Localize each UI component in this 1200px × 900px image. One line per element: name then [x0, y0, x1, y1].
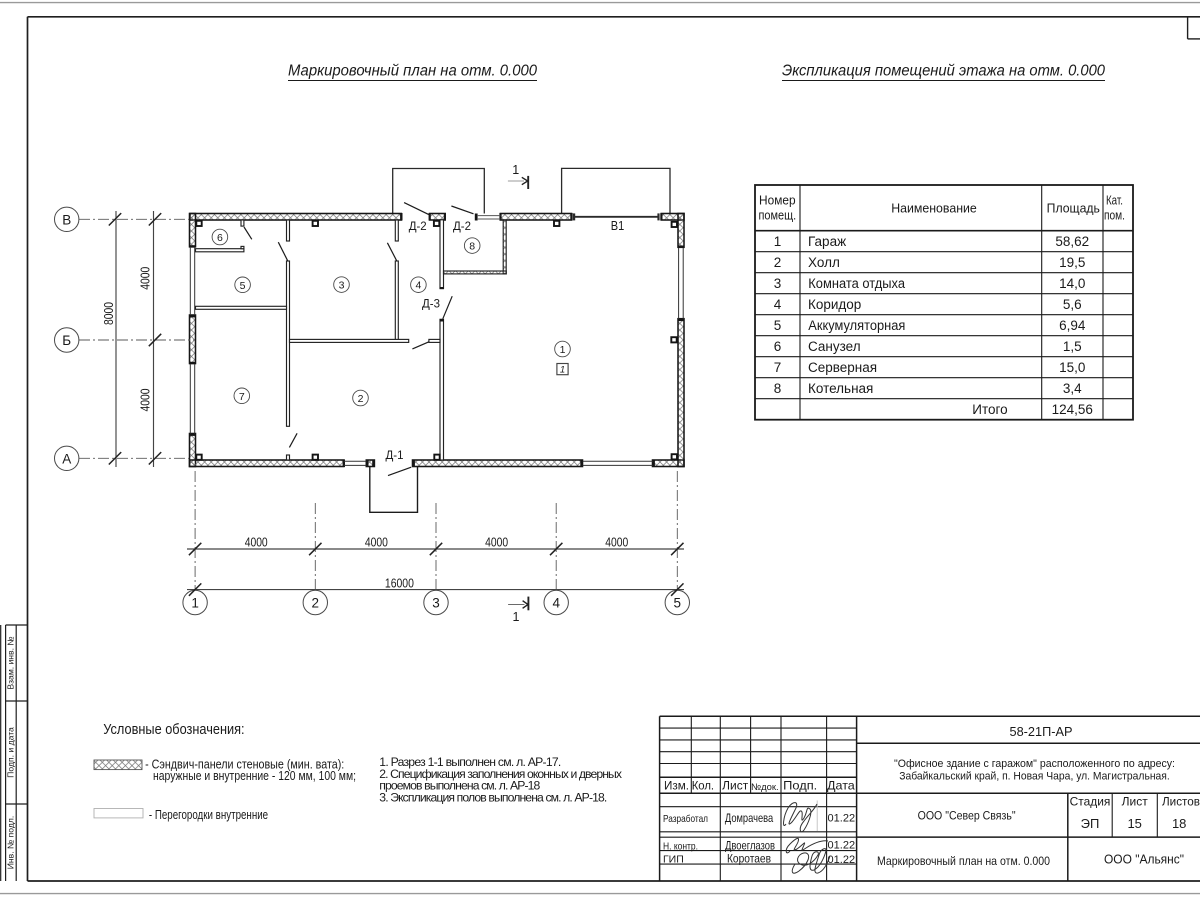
- svg-text:Стадия: Стадия: [1070, 795, 1111, 809]
- svg-text:Маркировочный план на отм. 0.0: Маркировочный план на отм. 0.000: [288, 63, 537, 80]
- svg-text:01.22: 01.22: [828, 813, 856, 825]
- svg-text:Коридор: Коридор: [808, 297, 861, 312]
- svg-text:Забайкальский край, п. Новая Ч: Забайкальский край, п. Новая Чара, ул. М…: [899, 770, 1170, 782]
- svg-text:3. Экспликация полов выполнена: 3. Экспликация полов выполнена см. л. АР…: [379, 790, 607, 804]
- svg-text:1: 1: [513, 610, 520, 624]
- svg-text:1: 1: [560, 365, 565, 376]
- svg-text:3,4: 3,4: [1063, 381, 1082, 396]
- svg-text:Д-1: Д-1: [386, 448, 404, 462]
- svg-text:2: 2: [774, 255, 782, 270]
- svg-text:Листов: Листов: [1162, 795, 1200, 809]
- svg-text:4000: 4000: [139, 388, 153, 411]
- svg-text:Условные обозначения:: Условные обозначения:: [103, 722, 244, 738]
- svg-text:4: 4: [552, 596, 560, 611]
- svg-text:3: 3: [339, 280, 345, 292]
- svg-text:4000: 4000: [365, 535, 388, 549]
- svg-text:8000: 8000: [102, 302, 116, 325]
- svg-text:Разработал: Разработал: [663, 813, 708, 825]
- svg-text:Коротаев: Коротаев: [727, 852, 771, 866]
- svg-text:Подп.: Подп.: [783, 780, 817, 793]
- svg-text:7: 7: [774, 360, 782, 375]
- svg-text:Инв. № подл.: Инв. № подл.: [6, 816, 16, 870]
- svg-text:Холл: Холл: [808, 255, 840, 270]
- svg-text:16000: 16000: [385, 577, 414, 591]
- svg-text:1: 1: [560, 344, 566, 356]
- svg-text:5,6: 5,6: [1063, 297, 1082, 312]
- svg-text:"Офисное здание с гаражом" рас: "Офисное здание с гаражом" расположенног…: [894, 758, 1175, 770]
- svg-text:ЭП: ЭП: [1081, 816, 1100, 831]
- svg-text:1,5: 1,5: [1063, 339, 1082, 354]
- svg-text:В1: В1: [611, 219, 625, 233]
- svg-text:5: 5: [674, 596, 682, 611]
- svg-text:Дата: Дата: [827, 780, 855, 793]
- svg-text:Изм.: Изм.: [664, 780, 689, 793]
- svg-text:01.22: 01.22: [828, 854, 856, 866]
- svg-text:ГИП: ГИП: [663, 853, 684, 865]
- svg-text:58,62: 58,62: [1055, 234, 1089, 249]
- svg-text:Лист: Лист: [1122, 795, 1149, 809]
- svg-text:Площадь: Площадь: [1047, 201, 1101, 216]
- svg-text:6: 6: [217, 232, 223, 244]
- svg-text:ООО "Север Связь": ООО "Север Связь": [918, 810, 1016, 822]
- svg-text:Двоеглазов: Двоеглазов: [725, 839, 775, 853]
- svg-text:пом.: пом.: [1104, 208, 1125, 223]
- svg-text:Гараж: Гараж: [808, 234, 846, 249]
- svg-text:58-21П-АР: 58-21П-АР: [1010, 724, 1073, 739]
- svg-text:Кат.: Кат.: [1106, 193, 1123, 208]
- svg-text:ООО "Альянс": ООО "Альянс": [1104, 851, 1184, 866]
- svg-text:Маркировочный план на отм. 0.0: Маркировочный план на отм. 0.000: [877, 854, 1050, 868]
- svg-text:Итого: Итого: [972, 402, 1007, 417]
- svg-text:Санузел: Санузел: [808, 339, 861, 354]
- svg-text:Аккумуляторная: Аккумуляторная: [808, 318, 905, 333]
- svg-text:1: 1: [774, 234, 782, 249]
- svg-text:Кол.: Кол.: [692, 780, 714, 793]
- svg-text:Котельная: Котельная: [808, 381, 873, 396]
- svg-text:Лист: Лист: [722, 780, 749, 793]
- svg-text:4000: 4000: [485, 535, 508, 549]
- svg-text:01.22: 01.22: [828, 839, 856, 851]
- svg-text:2: 2: [312, 596, 320, 611]
- svg-text:Д-2: Д-2: [453, 219, 471, 233]
- svg-text:6: 6: [774, 339, 782, 354]
- svg-text:4000: 4000: [139, 267, 153, 290]
- svg-text:19,5: 19,5: [1059, 255, 1085, 270]
- svg-text:5: 5: [240, 280, 246, 292]
- svg-text:1: 1: [512, 163, 519, 177]
- svg-text:15: 15: [1127, 816, 1141, 831]
- svg-text:Д-3: Д-3: [422, 297, 440, 311]
- svg-text:Б: Б: [62, 333, 71, 348]
- svg-text:4: 4: [415, 280, 421, 292]
- svg-text:Комната отдыха: Комната отдыха: [808, 276, 905, 291]
- svg-text:Экспликация помещений этажа на: Экспликация помещений этажа на отм. 0.00…: [782, 63, 1105, 80]
- svg-text:Наименование: Наименование: [891, 201, 977, 216]
- svg-text:Серверная: Серверная: [808, 360, 877, 375]
- svg-text:8: 8: [469, 241, 475, 253]
- svg-text:14,0: 14,0: [1059, 276, 1085, 291]
- svg-text:Н. контр.: Н. контр.: [663, 840, 698, 852]
- svg-text:6,94: 6,94: [1059, 318, 1086, 333]
- svg-text:Домрачева: Домрачева: [725, 811, 774, 825]
- svg-text:Взам. инв. №: Взам. инв. №: [6, 636, 16, 689]
- svg-text:15,0: 15,0: [1059, 360, 1085, 375]
- svg-text:Номер: Номер: [759, 193, 796, 208]
- svg-text:8: 8: [774, 381, 782, 396]
- svg-text:4000: 4000: [605, 535, 628, 549]
- svg-text:124,56: 124,56: [1052, 402, 1093, 417]
- svg-text:помещ.: помещ.: [758, 208, 796, 223]
- svg-text:В: В: [62, 212, 71, 227]
- svg-text:1: 1: [191, 596, 199, 611]
- svg-text:- Перегородки внутренние: - Перегородки внутренние: [149, 808, 268, 822]
- svg-text:наружные и внутренние - 120 мм: наружные и внутренние - 120 мм, 100 мм;: [153, 769, 356, 783]
- svg-text:18: 18: [1172, 816, 1186, 831]
- svg-text:5: 5: [774, 318, 782, 333]
- svg-text:№док.: №док.: [751, 782, 779, 793]
- svg-text:Подп. и дата: Подп. и дата: [6, 727, 16, 778]
- svg-text:4: 4: [774, 297, 782, 312]
- svg-text:4000: 4000: [245, 535, 268, 549]
- svg-text:2: 2: [358, 393, 364, 405]
- svg-text:3: 3: [774, 276, 782, 291]
- svg-text:А: А: [62, 451, 71, 466]
- svg-text:Д-2: Д-2: [409, 219, 427, 233]
- svg-text:3: 3: [432, 596, 440, 611]
- svg-text:7: 7: [239, 391, 245, 403]
